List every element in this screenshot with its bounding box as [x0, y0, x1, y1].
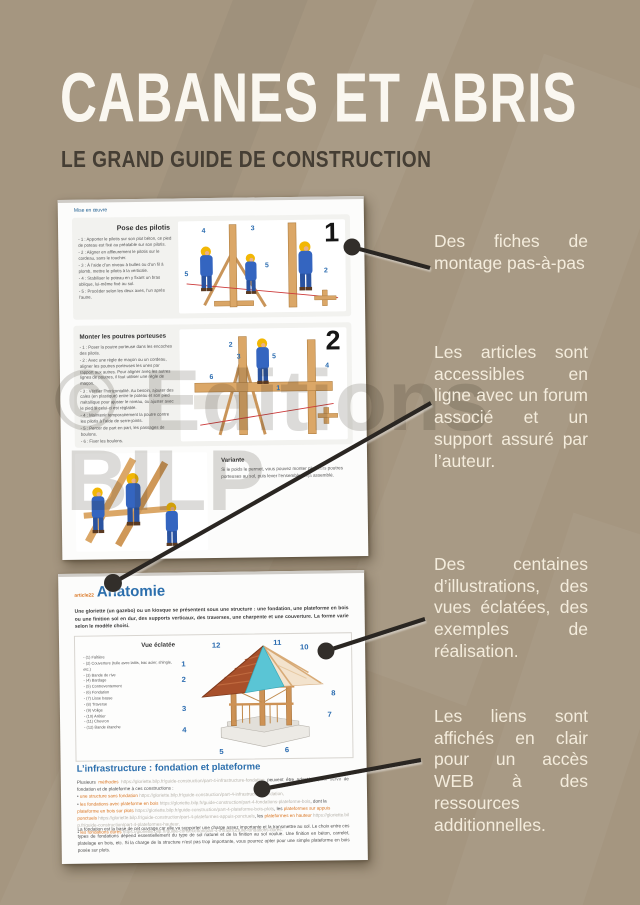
fig-label: 2: [229, 342, 233, 349]
fig-number: 1: [181, 660, 185, 669]
inline-link[interactable]: plateformes en hauteur: [264, 812, 311, 818]
inline-text: , les: [274, 806, 284, 811]
fig-label: 5: [184, 271, 188, 278]
callout-liens: Les liens sont affichés en clair pour un…: [434, 706, 588, 836]
brochure-page: CABANES ET ABRIS LE GRAND GUIDE DE CONST…: [0, 0, 640, 905]
fig-label: 4: [325, 362, 329, 369]
fig-number: 8: [331, 689, 335, 698]
page-title: CABANES ET ABRIS: [60, 58, 577, 138]
inline-link[interactable]: une structure sans fondation: [80, 793, 138, 799]
vue-eclatee-title: Vue éclatée: [83, 641, 175, 649]
fig-number: 6: [285, 745, 289, 754]
fig-number: 7: [327, 710, 331, 719]
fiche-title: Monter les poutres porteuses: [79, 333, 171, 341]
step-item: 1 : Apporter le pilotis sur son plot bét…: [78, 236, 172, 249]
fig-label: 1: [276, 385, 280, 392]
guide-page-anatomie: article22Anatomie Une gloriette (un gaze…: [58, 570, 368, 864]
fig-label: 3: [251, 225, 255, 232]
fiche-title: Pose des pilotis: [78, 225, 170, 233]
step-item: 6 : Fixer les boulons.: [81, 438, 175, 445]
step-item: 1 : Poser la poutre porteuse dans les en…: [80, 344, 174, 357]
step-item: 2 : Aligner en affleurement le pilotis s…: [78, 249, 172, 262]
fig-label: 2: [324, 267, 328, 274]
article-intro: Une gloriette (un gazebo) ou un kiosque …: [75, 605, 349, 631]
inline-text: https://gloriette.bilp.fr/guide-construc…: [118, 777, 264, 784]
fig-number: 11: [273, 638, 281, 647]
fig-number: 12: [212, 641, 221, 650]
step-item: 3 : À l’aide d’un niveau à bulles ou d’u…: [78, 262, 172, 275]
infrastructure-title: L’infrastructure : fondation et platefor…: [77, 761, 261, 774]
illustration-pose-pilotis: 4 3 5 5 2 1: [178, 219, 346, 313]
vue-eclatee-list: (1) Faîtière (2) Couverture (tuile avec …: [83, 653, 176, 730]
step-item: 4 : Stabiliser le poteau en y fixant un …: [79, 275, 173, 288]
infrastructure-closing: La fondation est la base de cet ouvrage …: [77, 822, 349, 854]
variante-block: Variante Si le poids le permet, vous pou…: [221, 456, 343, 480]
callout-fiches: Des fiches de montage pas-à-pas: [434, 231, 588, 274]
step-item: 5 : Percer de part en part, les passages…: [81, 425, 175, 438]
fig-number: 2: [182, 675, 186, 684]
fiche-poutres-porteuses: Monter les poutres porteuses 1 : Poser l…: [73, 322, 353, 448]
inline-text: , les: [255, 813, 265, 818]
inline-text: Plusieurs: [77, 780, 99, 785]
variante-title: Variante: [221, 456, 343, 464]
step-item: 2 : Avec une règle de maçon ou un cordea…: [80, 357, 174, 387]
page-edge: [58, 196, 364, 203]
inline-link[interactable]: les fondations avec plateforme en bois: [80, 801, 158, 807]
page-subtitle: LE GRAND GUIDE DE CONSTRUCTION: [61, 146, 431, 173]
fig-number: 10: [300, 642, 309, 651]
step-item: 5 : Procéder selon les deux axes, l’un a…: [79, 288, 173, 301]
fig-number: 3: [182, 704, 186, 713]
article-ref: article22: [74, 594, 94, 599]
fig-label: 5: [265, 262, 269, 269]
callout-illustrations: Des centaines d’illustrations, des vues …: [434, 554, 588, 663]
inline-link[interactable]: plateforme en bois sur plots: [77, 808, 133, 814]
breadcrumb-link[interactable]: Mise en œuvre: [74, 207, 107, 213]
fig-number: 9: [325, 648, 329, 657]
article-title: Anatomie: [97, 583, 166, 601]
callout-articles: Les articles sont accessibles en ligne a…: [434, 342, 588, 472]
guide-page-montage: Mise en œuvre Pose des pilotis 1 : Appor…: [58, 196, 369, 560]
fig-label: 6: [209, 374, 213, 381]
vue-eclatee-box: Vue éclatée (1) Faîtière (2) Couverture …: [74, 632, 354, 762]
fig-number: 5: [219, 747, 223, 756]
article-heading: article22Anatomie: [74, 583, 165, 602]
fig-label: 4: [202, 228, 206, 235]
fiche-steps: Pose des pilotis 1 : Apporter le pilotis…: [78, 222, 173, 303]
inline-text: https://gloriette.bilp.fr/guide-construc…: [158, 799, 310, 806]
inline-text: https://gloriette.bilp.fr/guide-construc…: [134, 806, 274, 813]
fiche-steps: Monter les poutres porteuses 1 : Poser l…: [79, 330, 175, 447]
page-edge: [58, 570, 364, 577]
inline-text: https://gloriette.bilp.fr/guide-construc…: [97, 813, 255, 820]
step-item: 4 : Maintenir temporairement la poutre c…: [80, 412, 174, 425]
fig-label: 3: [237, 354, 241, 361]
illustration-gazebo-eclate: 1 2 3 4 5 6 7 8 9 10 11 12: [177, 635, 351, 757]
illustration-variante: [75, 452, 208, 552]
inline-text: , dont la: [310, 798, 326, 803]
variante-text: Si le poids le permet, vous pouvez monte…: [221, 465, 343, 480]
illustration-poutres-porteuses: 2 3 5 6 1 4 2: [179, 327, 347, 441]
step-item: 3 : Vérifier l’horizontalité. Au besoin,…: [80, 387, 174, 411]
fiche-number: 1: [324, 219, 339, 246]
vue-item: (12) Bande étanche: [84, 724, 176, 731]
fiche-number: 2: [325, 327, 340, 354]
fiche-pose-pilotis: Pose des pilotis 1 : Apporter le pilotis…: [72, 214, 351, 320]
fig-label: 5: [272, 353, 276, 360]
inline-text: https://gloriette.bilp.fr/guide-construc…: [138, 791, 284, 798]
inline-link[interactable]: méthodes: [98, 779, 118, 784]
